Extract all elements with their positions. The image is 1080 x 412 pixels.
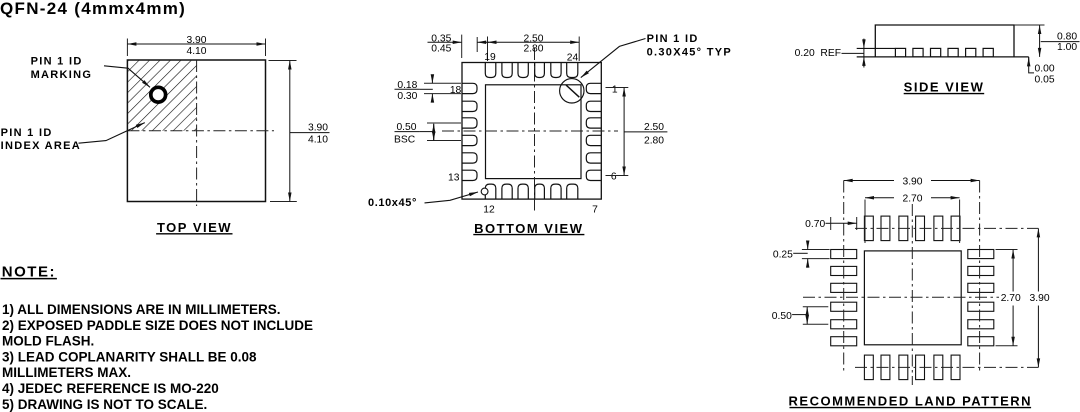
svg-text:7: 7 [592, 205, 598, 216]
svg-text:SIDE VIEW: SIDE VIEW [904, 80, 985, 95]
svg-text:0.10x45°: 0.10x45° [368, 197, 417, 209]
svg-text:MOLD FLASH.: MOLD FLASH. [2, 334, 94, 349]
svg-text:4.10: 4.10 [308, 134, 328, 145]
svg-text:INDEX AREA: INDEX AREA [1, 140, 81, 152]
svg-text:3.90: 3.90 [1030, 293, 1050, 304]
svg-text:MARKING: MARKING [31, 69, 93, 81]
svg-text:3) LEAD COPLANARITY SHALL BE 0: 3) LEAD COPLANARITY SHALL BE 0.08 [2, 349, 257, 364]
svg-text:4.10: 4.10 [186, 46, 206, 57]
svg-text:2.70: 2.70 [902, 194, 922, 205]
svg-text:RECOMMENDED LAND PATTERN: RECOMMENDED LAND PATTERN [789, 394, 1033, 409]
svg-text:12: 12 [483, 205, 495, 216]
svg-text:0.70: 0.70 [805, 219, 825, 230]
svg-text:2) EXPOSED PADDLE SIZE DOES NO: 2) EXPOSED PADDLE SIZE DOES NOT INCLUDE [2, 318, 313, 333]
svg-text:5) DRAWING IS NOT TO SCALE.: 5) DRAWING IS NOT TO SCALE. [2, 397, 207, 412]
svg-text:6: 6 [611, 172, 617, 183]
svg-text:19: 19 [484, 52, 496, 63]
svg-text:PIN 1 ID: PIN 1 ID [647, 33, 699, 45]
svg-text:3.90: 3.90 [308, 122, 328, 133]
svg-text:0.30X45° TYP: 0.30X45° TYP [647, 47, 732, 59]
svg-text:PIN 1 ID: PIN 1 ID [31, 55, 83, 67]
svg-text:2.80: 2.80 [523, 44, 543, 55]
svg-text:0.25: 0.25 [773, 250, 793, 261]
svg-text:2.50: 2.50 [644, 122, 664, 133]
svg-text:0.80: 0.80 [1057, 31, 1077, 42]
svg-text:1.00: 1.00 [1057, 42, 1077, 53]
svg-text:3.90: 3.90 [186, 35, 206, 46]
svg-text:PIN 1 ID: PIN 1 ID [1, 127, 53, 139]
svg-text:TOP VIEW: TOP VIEW [157, 220, 232, 235]
svg-text:0.20 REF: 0.20 REF [795, 48, 841, 59]
svg-text:MILLIMETERS MAX.: MILLIMETERS MAX. [2, 365, 131, 380]
svg-text:0.50: 0.50 [772, 311, 792, 322]
svg-text:24: 24 [567, 53, 579, 64]
svg-text:18: 18 [450, 85, 462, 96]
svg-text:4) JEDEC REFERENCE IS MO-220: 4) JEDEC REFERENCE IS MO-220 [2, 381, 219, 396]
svg-text:2.80: 2.80 [644, 135, 664, 146]
svg-text:BOTTOM VIEW: BOTTOM VIEW [474, 221, 583, 236]
svg-text:QFN-24 (4mmx4mm): QFN-24 (4mmx4mm) [0, 0, 186, 18]
svg-text:13: 13 [448, 172, 460, 183]
svg-text:BSC: BSC [394, 134, 416, 145]
svg-text:0.45: 0.45 [431, 44, 451, 55]
svg-text:0.05: 0.05 [1035, 75, 1055, 86]
svg-text:1: 1 [612, 85, 618, 96]
svg-text:2.70: 2.70 [1001, 293, 1021, 304]
svg-text:0.30: 0.30 [397, 91, 417, 102]
svg-text:3.90: 3.90 [902, 176, 922, 187]
svg-text:1) ALL DIMENSIONS ARE IN MILLI: 1) ALL DIMENSIONS ARE IN MILLIMETERS. [2, 302, 281, 317]
svg-text:0.00: 0.00 [1035, 64, 1055, 75]
